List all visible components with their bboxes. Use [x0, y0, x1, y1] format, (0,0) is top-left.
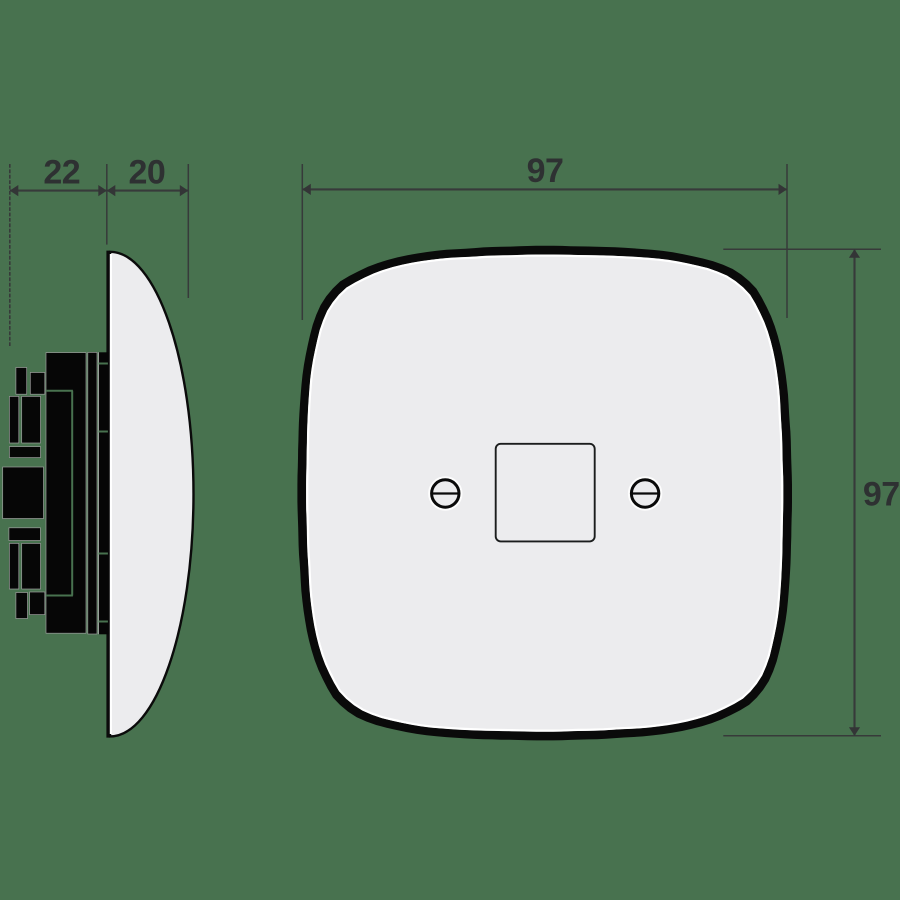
svg-text:22: 22 [43, 153, 80, 191]
svg-text:97: 97 [527, 152, 564, 190]
svg-text:97: 97 [863, 475, 900, 513]
svg-text:20: 20 [128, 153, 165, 191]
